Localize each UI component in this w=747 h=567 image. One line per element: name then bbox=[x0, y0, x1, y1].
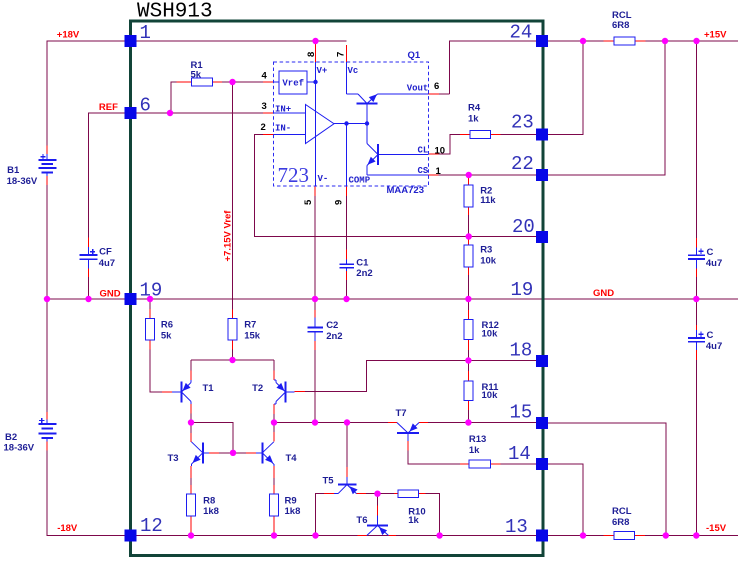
svg-text:6R8: 6R8 bbox=[612, 20, 629, 31]
svg-text:V-: V- bbox=[318, 174, 329, 184]
svg-text:GND: GND bbox=[100, 289, 121, 300]
svg-text:18-36V: 18-36V bbox=[4, 443, 35, 454]
svg-text:-15V: -15V bbox=[706, 523, 727, 534]
svg-text:R7: R7 bbox=[244, 320, 256, 331]
svg-text:R8: R8 bbox=[203, 495, 215, 506]
svg-text:13: 13 bbox=[505, 516, 528, 538]
svg-text:T5: T5 bbox=[323, 475, 335, 486]
svg-text:CL: CL bbox=[418, 146, 429, 156]
svg-text:C2: C2 bbox=[326, 320, 338, 331]
svg-text:1: 1 bbox=[436, 166, 442, 177]
svg-text:5k: 5k bbox=[191, 70, 202, 81]
svg-text:1: 1 bbox=[140, 22, 151, 44]
svg-text:IN-: IN- bbox=[275, 124, 291, 134]
svg-text:+7.15V Vref: +7.15V Vref bbox=[223, 210, 234, 262]
svg-text:R6: R6 bbox=[161, 320, 173, 331]
svg-text:Q1: Q1 bbox=[408, 50, 421, 61]
svg-text:Vout: Vout bbox=[407, 84, 429, 94]
svg-text:10k: 10k bbox=[482, 390, 499, 401]
svg-text:R13: R13 bbox=[469, 434, 486, 445]
svg-text:14: 14 bbox=[508, 443, 531, 465]
svg-text:1k: 1k bbox=[468, 114, 479, 125]
svg-text:Vc: Vc bbox=[348, 66, 359, 76]
svg-text:MAA723: MAA723 bbox=[387, 185, 425, 196]
svg-text:4: 4 bbox=[262, 71, 268, 82]
svg-text:B1: B1 bbox=[7, 165, 20, 176]
svg-text:12: 12 bbox=[140, 515, 163, 537]
svg-text:T3: T3 bbox=[168, 453, 179, 464]
svg-text:6: 6 bbox=[434, 81, 439, 92]
svg-text:10k: 10k bbox=[482, 328, 499, 339]
svg-text:6: 6 bbox=[140, 95, 151, 117]
svg-text:1k8: 1k8 bbox=[203, 506, 219, 517]
svg-text:1k: 1k bbox=[469, 445, 480, 456]
svg-text:IN+: IN+ bbox=[275, 105, 291, 115]
svg-text:10k: 10k bbox=[480, 256, 497, 267]
svg-text:T6: T6 bbox=[356, 515, 367, 526]
svg-text:20: 20 bbox=[512, 216, 535, 238]
svg-text:2n2: 2n2 bbox=[356, 268, 372, 279]
svg-text:10: 10 bbox=[435, 146, 446, 157]
svg-text:4u7: 4u7 bbox=[706, 341, 722, 352]
svg-text:22: 22 bbox=[511, 153, 534, 175]
svg-text:B2: B2 bbox=[5, 432, 17, 443]
svg-text:+15V: +15V bbox=[704, 30, 727, 41]
svg-text:CS: CS bbox=[418, 166, 429, 176]
svg-text:2n2: 2n2 bbox=[326, 331, 342, 342]
svg-text:23: 23 bbox=[511, 112, 534, 134]
svg-text:1k: 1k bbox=[408, 515, 419, 526]
svg-text:WSH913: WSH913 bbox=[137, 1, 213, 24]
svg-text:3: 3 bbox=[262, 101, 267, 112]
svg-text:GND: GND bbox=[593, 288, 614, 299]
svg-text:5: 5 bbox=[303, 199, 314, 205]
svg-text:V+: V+ bbox=[317, 66, 328, 76]
svg-text:15: 15 bbox=[510, 401, 533, 423]
svg-text:9: 9 bbox=[334, 200, 345, 205]
svg-text:COMP: COMP bbox=[349, 176, 371, 186]
svg-text:4u7: 4u7 bbox=[99, 258, 115, 269]
svg-text:T4: T4 bbox=[286, 453, 298, 464]
svg-text:RCL: RCL bbox=[612, 506, 632, 517]
svg-text:15k: 15k bbox=[244, 330, 261, 341]
svg-text:R4: R4 bbox=[468, 103, 481, 114]
svg-text:2: 2 bbox=[261, 122, 266, 133]
svg-text:24: 24 bbox=[510, 22, 533, 44]
svg-text:REF: REF bbox=[99, 102, 118, 113]
svg-text:-18V: -18V bbox=[57, 523, 78, 534]
svg-text:1k8: 1k8 bbox=[285, 506, 301, 517]
svg-text:19: 19 bbox=[140, 280, 163, 302]
svg-text:11k: 11k bbox=[480, 195, 496, 206]
svg-text:5k: 5k bbox=[161, 330, 172, 341]
svg-text:R3: R3 bbox=[480, 245, 492, 256]
svg-text:18-36V: 18-36V bbox=[7, 176, 38, 187]
svg-text:4u7: 4u7 bbox=[706, 258, 722, 269]
svg-text:CF: CF bbox=[99, 247, 112, 258]
svg-text:R9: R9 bbox=[285, 495, 297, 506]
svg-text:723: 723 bbox=[278, 163, 310, 187]
svg-text:T2: T2 bbox=[252, 383, 263, 394]
svg-text:Vref: Vref bbox=[282, 79, 304, 89]
svg-text:T1: T1 bbox=[203, 383, 215, 394]
svg-text:+18V: +18V bbox=[57, 30, 80, 41]
svg-text:18: 18 bbox=[510, 339, 533, 361]
svg-text:6R8: 6R8 bbox=[612, 517, 629, 528]
svg-text:19: 19 bbox=[511, 279, 534, 301]
svg-text:8: 8 bbox=[306, 52, 317, 57]
svg-text:C: C bbox=[707, 247, 714, 258]
svg-text:C: C bbox=[707, 330, 714, 341]
svg-text:7: 7 bbox=[336, 52, 347, 57]
svg-text:C1: C1 bbox=[356, 258, 369, 269]
svg-text:T7: T7 bbox=[396, 408, 407, 419]
